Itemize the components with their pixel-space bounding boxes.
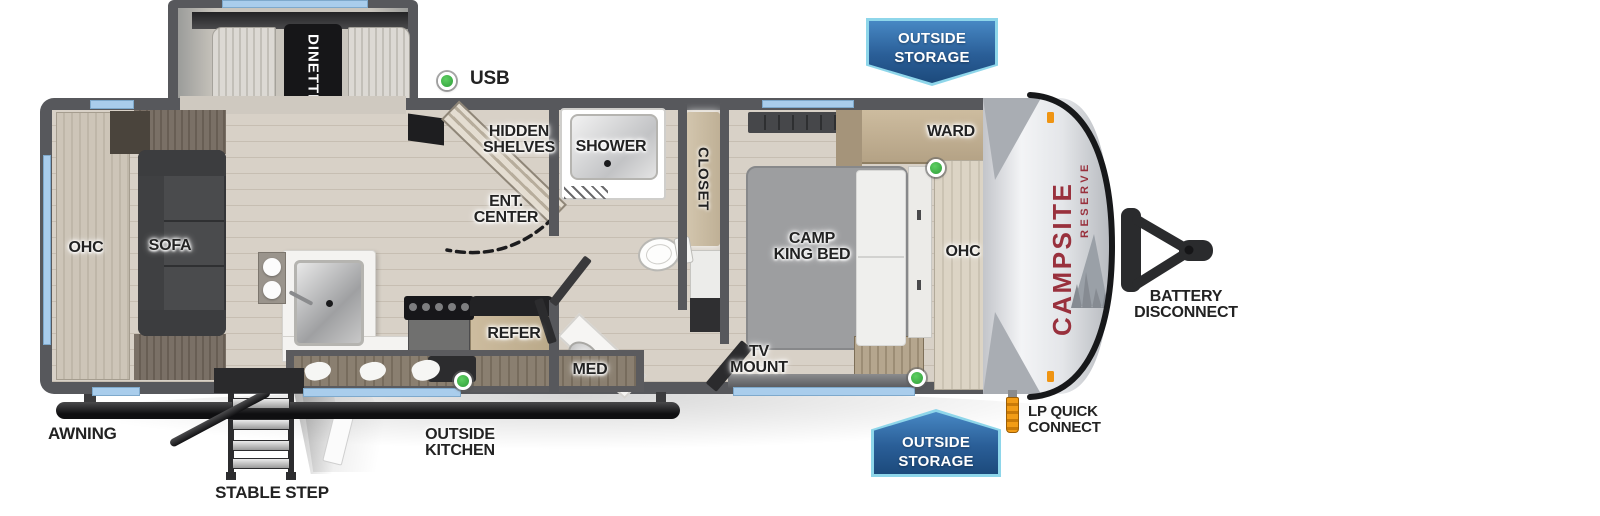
front-cap: CAMPSITE RESERVE (975, 88, 1220, 408)
window-kitchen-bottom (303, 388, 461, 397)
stable-step-tread-4 (232, 458, 290, 469)
shower-hatch (564, 186, 608, 199)
cap-marker-light-top (1047, 112, 1054, 123)
knob-2 (263, 281, 281, 299)
shower-drain (604, 160, 611, 167)
stove-burner-5 (461, 303, 469, 311)
outside-kitchen-line2: KITCHEN (425, 443, 495, 459)
hidden-shelves-label: HIDDEN SHELVES (483, 124, 555, 155)
ent-center-label: ENT. CENTER (474, 194, 539, 225)
stable-step-foot-right (286, 472, 296, 480)
wardrobe-handle-1 (917, 210, 921, 220)
badge-top-line1: OUTSIDE (866, 30, 998, 47)
tv-mount-line2: MOUNT (730, 360, 788, 376)
hitch-arm-lower (1137, 254, 1185, 284)
sofa-arm-top (138, 150, 226, 176)
sofa-cushion-line-2 (164, 265, 224, 267)
ohc-rear-label: OHC (69, 240, 104, 256)
sofa-arm-bottom (138, 310, 226, 336)
lp-quick-connect-line1: LP QUICK (1028, 404, 1101, 420)
bath-wall-bottom (549, 300, 559, 392)
stove-burner-1 (409, 303, 417, 311)
sofa-label: SOFA (149, 238, 192, 254)
bed-pillow-divider (858, 256, 904, 258)
hitch-coupler (1179, 240, 1213, 261)
stable-step-label: STABLE STEP (215, 485, 329, 501)
usb-indicator-dot-bedroom-2 (908, 369, 926, 387)
upper-cabinet-rear (110, 111, 150, 154)
window-bedroom-top (762, 100, 854, 108)
badge-bottom-line2: STORAGE (871, 453, 1001, 470)
brand-name: CAMPSITE (1047, 182, 1077, 336)
sofa-console-bottom (134, 334, 226, 380)
usb-label: USB (470, 71, 510, 87)
hidden-shelves-line2: SHELVES (483, 140, 555, 156)
lp-quick-connect-line2: CONNECT (1028, 420, 1101, 436)
tv-mount-label: TV MOUNT (730, 344, 788, 375)
awning-roller (56, 402, 680, 419)
camp-king-bed-label: CAMP KING BED (774, 231, 851, 262)
outside-kitchen-label: OUTSIDE KITCHEN (425, 427, 495, 458)
battery-disconnect-line1: BATTERY (1134, 289, 1238, 305)
brand-series: RESERVE (1079, 161, 1091, 238)
cap-marker-light-bottom (1047, 371, 1054, 382)
lp-quick-connect-fitting (1006, 397, 1019, 433)
window-rear-top (90, 100, 134, 109)
ohc-bedroom-label: OHC (946, 244, 981, 260)
bed-pillows (856, 170, 906, 346)
wardrobe-handle-2 (917, 280, 921, 290)
stove-burner-3 (435, 303, 443, 311)
usb-indicator-dot-main (438, 72, 456, 90)
awning-label: AWNING (48, 426, 117, 442)
usb-indicator-dot-bedroom-1 (927, 159, 945, 177)
stable-step-foot-left (226, 472, 236, 480)
entry-step-well (214, 368, 304, 393)
camp-king-bed-line2: KING BED (774, 247, 851, 263)
battery-disconnect-line2: DISCONNECT (1134, 305, 1238, 321)
ward-label: WARD (927, 124, 975, 140)
ac-unit-vents (752, 115, 848, 130)
closet-lower-dark (690, 298, 721, 332)
sink-drain (326, 300, 333, 307)
dinette-label: DINETTE (305, 34, 322, 105)
closet-wall-left (678, 104, 687, 310)
window-rear-bottom (92, 387, 140, 396)
closet-plate: CLOSET (686, 112, 720, 246)
floorplan-canvas: DINETTE OHC SOFA REFER (0, 0, 1600, 516)
closet-label: CLOSET (695, 147, 712, 211)
stable-step-tread-2 (232, 419, 290, 430)
camp-king-bed-line1: CAMP (774, 231, 851, 247)
lp-quick-connect-label: LP QUICK CONNECT (1028, 404, 1101, 435)
sofa-cushion-line-1 (164, 220, 224, 222)
stove-burner-2 (422, 303, 430, 311)
hitch-arm-upper (1137, 220, 1185, 248)
med-label: MED (573, 362, 608, 378)
dinette-slideout-window (222, 0, 368, 8)
stove-burner-4 (448, 303, 456, 311)
window-bedroom-bottom (733, 387, 915, 396)
badge-top-line2: STORAGE (866, 49, 998, 66)
tv-mount-line1: TV (730, 344, 788, 360)
refer-label: REFER (487, 326, 540, 342)
badge-bottom-line1: OUTSIDE (871, 434, 1001, 451)
shower-label: SHOWER (576, 139, 647, 155)
hidden-shelves-line1: HIDDEN (483, 124, 555, 140)
outside-storage-badge-top: OUTSIDE STORAGE (866, 18, 998, 86)
knob-1 (263, 258, 281, 276)
window-rear-side (43, 155, 51, 345)
bedroom-wardrobe-column (908, 166, 932, 338)
battery-disconnect-label: BATTERY DISCONNECT (1134, 289, 1238, 320)
stable-step-tread-3 (232, 440, 290, 451)
usb-indicator-dot-kitchen (454, 372, 472, 390)
ent-center-line2: CENTER (474, 210, 539, 226)
bedroom-wall-left (720, 104, 729, 344)
hitch-jack (1185, 246, 1194, 255)
outside-kitchen-line1: OUTSIDE (425, 427, 495, 443)
outside-storage-badge-bottom: OUTSIDE STORAGE (871, 409, 1001, 477)
ent-center-line1: ENT. (474, 194, 539, 210)
corner-cabinet (408, 113, 444, 145)
